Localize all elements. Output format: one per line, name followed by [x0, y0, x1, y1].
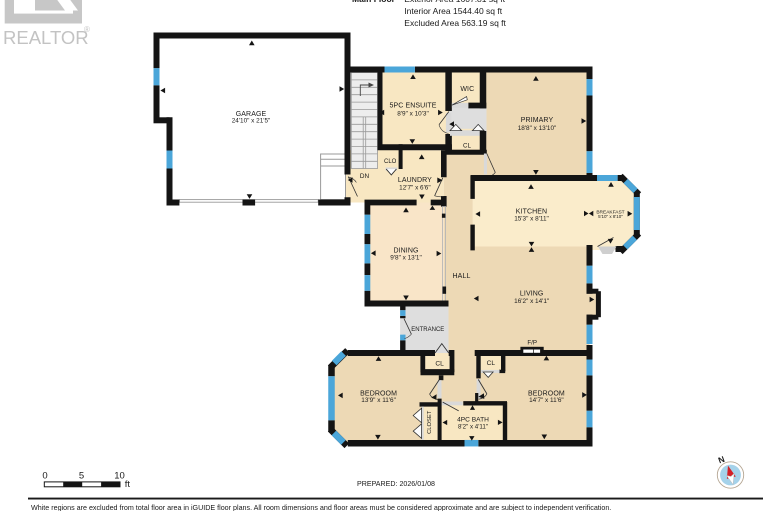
svg-text:5PC ENSUITE: 5PC ENSUITE [390, 103, 437, 110]
svg-text:LIVING: LIVING [520, 291, 544, 298]
svg-text:HALL: HALL [453, 273, 471, 280]
svg-text:F/P: F/P [527, 339, 537, 346]
svg-text:12'7" x 6'6": 12'7" x 6'6" [399, 184, 431, 191]
svg-text:PREPARED: 2026/01/08: PREPARED: 2026/01/08 [357, 480, 435, 488]
svg-text:10: 10 [114, 470, 125, 481]
svg-text:KITCHEN: KITCHEN [516, 208, 547, 215]
svg-text:DN: DN [360, 173, 370, 180]
svg-text:Exterior Area 1607.81 sq ft: Exterior Area 1607.81 sq ft [404, 0, 505, 4]
svg-text:5: 5 [79, 470, 84, 481]
svg-text:5'10" x 8'10": 5'10" x 8'10" [598, 214, 623, 219]
svg-text:18'8" x 13'10": 18'8" x 13'10" [518, 125, 557, 132]
svg-text:Excluded Area 563.19 sq ft: Excluded Area 563.19 sq ft [404, 18, 506, 28]
svg-text:CLOSET: CLOSET [427, 410, 433, 434]
svg-text:Main Floor: Main Floor [352, 0, 396, 4]
svg-text:PRIMARY: PRIMARY [521, 117, 554, 124]
svg-text:9'8" x 13'1": 9'8" x 13'1" [390, 254, 422, 261]
svg-text:16'2" x 14'1": 16'2" x 14'1" [514, 298, 549, 305]
svg-text:24'10" x 21'5": 24'10" x 21'5" [232, 117, 271, 124]
svg-text:LAUNDRY: LAUNDRY [398, 177, 432, 184]
svg-text:13'9" x 11'6": 13'9" x 11'6" [361, 397, 396, 404]
svg-text:ft: ft [125, 479, 131, 490]
svg-text:8'9" x 10'3": 8'9" x 10'3" [397, 111, 429, 118]
svg-text:ENTRANCE: ENTRANCE [411, 327, 444, 333]
svg-text:WIC: WIC [460, 86, 474, 93]
svg-text:DINING: DINING [393, 247, 418, 254]
svg-text:REALTOR: REALTOR [3, 27, 89, 48]
svg-text:4PC BATH: 4PC BATH [457, 416, 489, 423]
svg-text:CL: CL [487, 360, 496, 367]
svg-text:0: 0 [42, 470, 47, 481]
svg-text:8'2" x 4'11": 8'2" x 4'11" [458, 424, 488, 431]
svg-text:14'7" x 11'6": 14'7" x 11'6" [529, 397, 564, 404]
svg-text:CL: CL [435, 360, 444, 367]
svg-text:15'3" x 8'11": 15'3" x 8'11" [514, 215, 549, 222]
svg-text:®: ® [84, 25, 90, 34]
svg-text:CL: CL [463, 142, 471, 149]
svg-text:White regions are excluded fro: White regions are excluded from total fl… [31, 504, 611, 511]
svg-text:CLO: CLO [384, 159, 397, 165]
svg-text:Interior Area 1544.40 sq ft: Interior Area 1544.40 sq ft [404, 6, 502, 16]
